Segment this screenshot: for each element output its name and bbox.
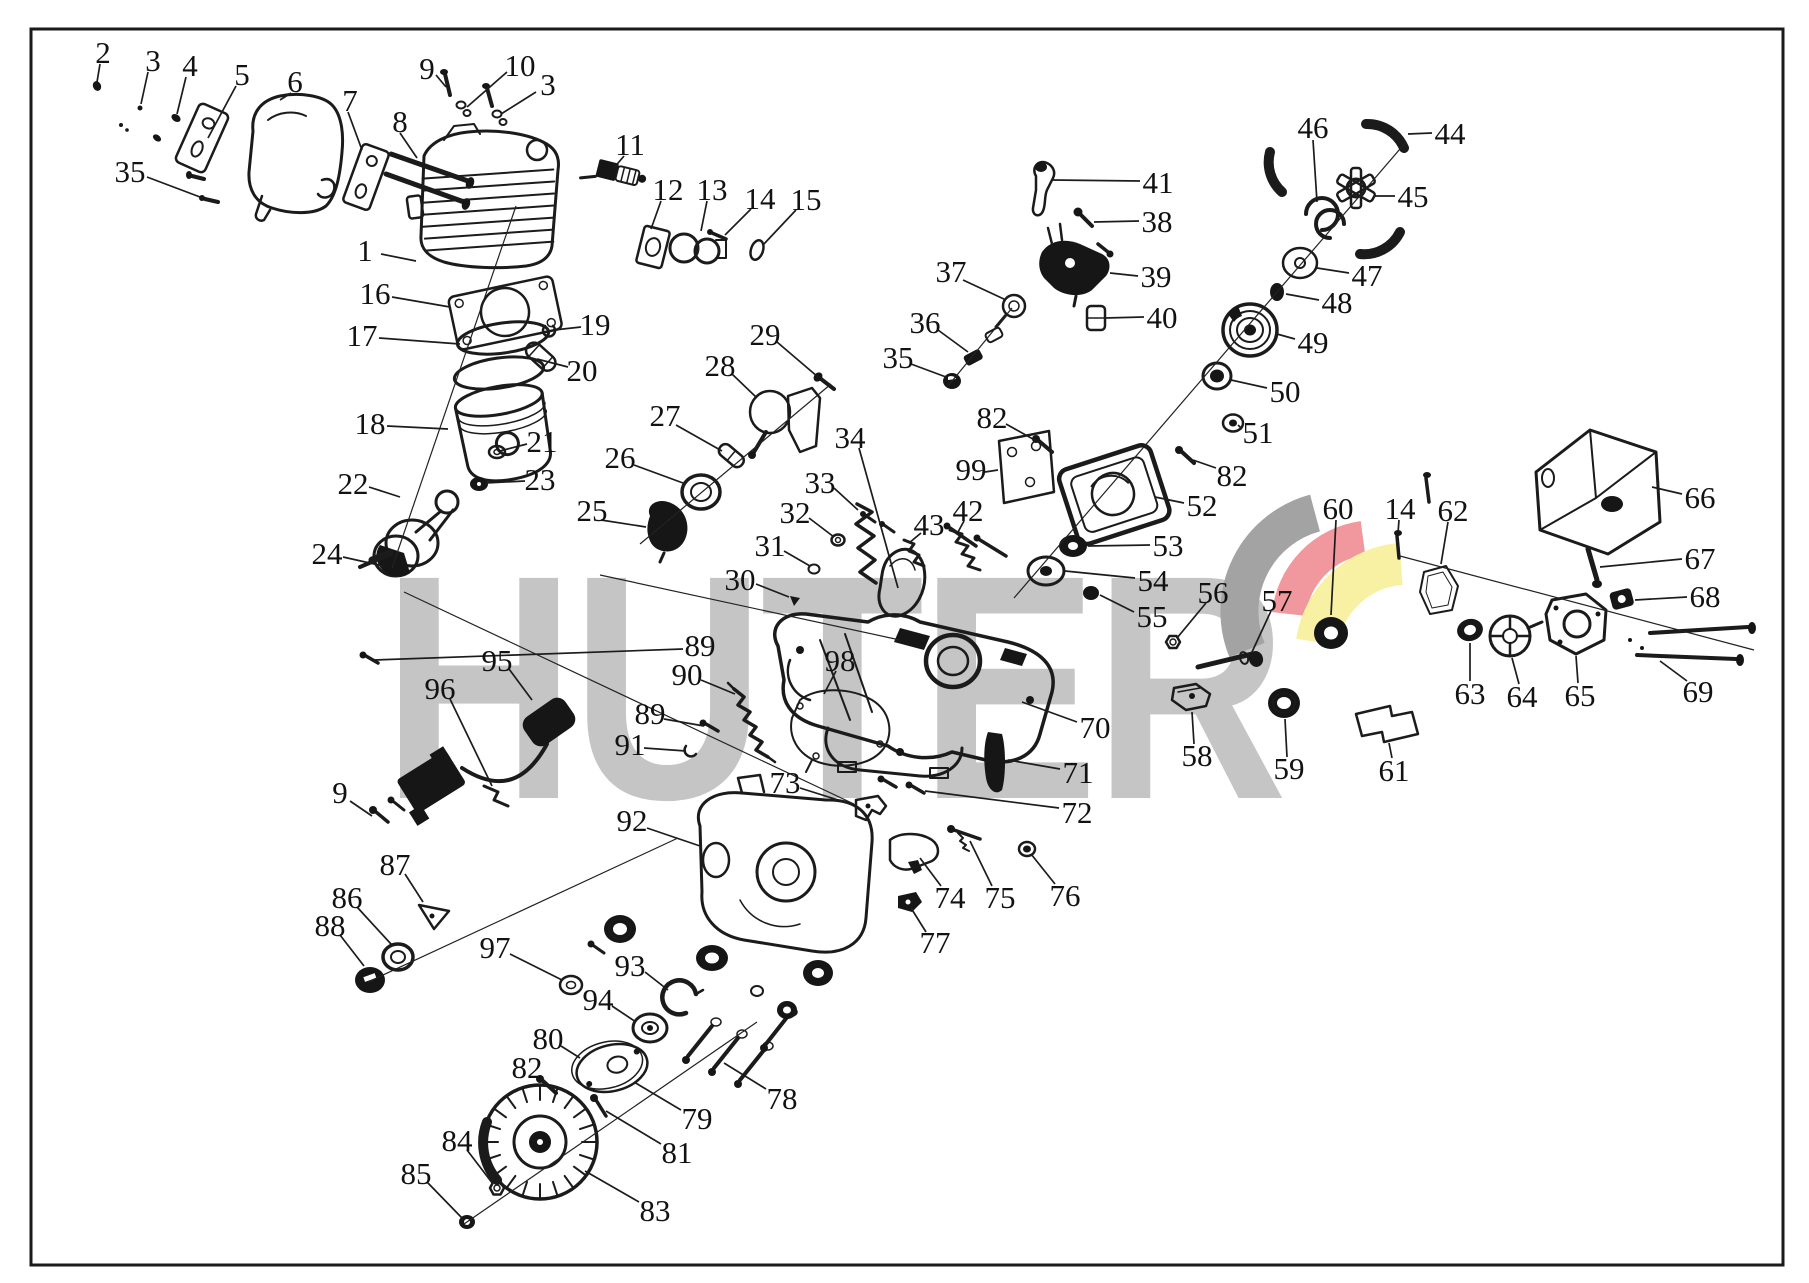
callout-65: 65 [1565, 678, 1596, 713]
callout-94: 94 [583, 982, 615, 1017]
callout-67: 67 [1685, 541, 1716, 576]
callout-82a: 82 [977, 400, 1008, 435]
callout-2: 2 [95, 35, 111, 70]
part-intake-boot-13 [670, 234, 726, 263]
callout-61: 61 [1379, 753, 1410, 788]
part-grommet-59 [1268, 688, 1300, 718]
leader-26 [634, 465, 683, 483]
leader-41 [1052, 180, 1140, 181]
callout-71: 71 [1063, 755, 1094, 790]
part-oil-tank-66 [1536, 430, 1660, 554]
callout-3: 3 [145, 43, 161, 78]
part-washer-97 [560, 976, 582, 994]
callout-15: 15 [791, 182, 822, 217]
callout-25: 25 [577, 493, 608, 528]
part-grommet-68 [1609, 587, 1635, 610]
exploded-parts-diagram: HUTER [0, 0, 1809, 1283]
callout-7: 7 [342, 83, 358, 118]
leader-35b [911, 364, 946, 377]
callout-37: 37 [936, 254, 967, 289]
part-nut-40 [1087, 306, 1105, 330]
leader-37 [963, 280, 1006, 300]
callout-10: 10 [505, 48, 536, 83]
callout-82b: 82 [1217, 458, 1248, 493]
leader-17 [379, 338, 460, 344]
leader-39 [1110, 273, 1138, 276]
leader-27 [676, 425, 722, 451]
part-gasket-62 [1420, 566, 1458, 614]
leader-82b [1193, 460, 1216, 468]
leader-85 [427, 1182, 462, 1218]
part-screws-9-10-3 [440, 69, 507, 125]
part-piston-rings-17 [452, 317, 550, 394]
leader-80 [561, 1046, 580, 1058]
callout-62: 62 [1438, 493, 1469, 528]
axis-line-2 [464, 1022, 757, 1224]
leader-93 [645, 972, 668, 990]
part-screw-14 [707, 229, 726, 239]
leader-49 [1277, 334, 1295, 339]
callout-26: 26 [605, 440, 636, 475]
callout-92: 92 [617, 803, 648, 838]
callout-57: 57 [1262, 583, 1293, 618]
part-ring-63 [1455, 616, 1486, 644]
leader-29 [777, 342, 818, 377]
part-muffler-cover-6 [249, 94, 343, 220]
leader-67 [1600, 559, 1682, 567]
callout-79: 79 [682, 1101, 713, 1136]
part-plate-61 [1356, 706, 1418, 742]
callout-84: 84 [442, 1123, 474, 1158]
callout-53: 53 [1153, 528, 1184, 563]
part-choke-lever-41 [1033, 162, 1054, 215]
callout-66: 66 [1685, 480, 1716, 515]
callout-11: 11 [615, 127, 645, 162]
part-gasket-12 [636, 225, 670, 268]
callout-41: 41 [1143, 165, 1174, 200]
leader-28 [732, 374, 757, 398]
callout-73: 73 [770, 765, 801, 800]
leader-81 [606, 1111, 661, 1144]
leader-50 [1231, 380, 1267, 388]
diagram-canvas: HUTER [0, 0, 1809, 1283]
callout-74: 74 [935, 880, 967, 915]
leader-47 [1317, 268, 1349, 273]
callout-68: 68 [1690, 579, 1721, 614]
part-oil-pump-64 [1490, 616, 1542, 656]
leader-9b [350, 801, 372, 816]
callout-96: 96 [425, 671, 456, 706]
callout-6: 6 [287, 64, 303, 99]
callout-44: 44 [1435, 116, 1467, 151]
leader-62 [1441, 522, 1448, 564]
callout-29: 29 [750, 317, 781, 352]
part-oring-15 [748, 239, 766, 262]
callout-43: 43 [914, 507, 945, 542]
part-small-fasteners-2-3-4 [91, 80, 182, 143]
callout-72: 72 [1062, 795, 1093, 830]
callout-64: 64 [1507, 679, 1539, 714]
callout-95: 95 [482, 643, 513, 678]
callout-54: 54 [1138, 563, 1170, 598]
part-oil-seal-60 [1314, 617, 1348, 649]
callout-32: 32 [780, 495, 811, 530]
callout-93: 93 [615, 948, 646, 983]
callout-76: 76 [1050, 878, 1081, 913]
callout-36: 36 [910, 305, 941, 340]
callout-18: 18 [355, 406, 386, 441]
part-washer-47 [1283, 248, 1317, 278]
part-cover-plate-79-80 [567, 1033, 653, 1100]
part-washer-51 [1223, 415, 1243, 432]
callout-60: 60 [1323, 491, 1354, 526]
callout-12: 12 [653, 172, 684, 207]
leader-79 [634, 1082, 681, 1110]
leader-36 [938, 330, 968, 352]
callout-27: 27 [650, 398, 681, 433]
callout-63: 63 [1455, 676, 1486, 711]
part-screws-35 [186, 171, 218, 202]
leader-1 [381, 254, 416, 261]
callout-5: 5 [234, 57, 250, 92]
callout-81: 81 [662, 1135, 693, 1170]
callout-14a: 14 [745, 181, 777, 216]
callout-24: 24 [312, 536, 344, 571]
callout-51: 51 [1243, 415, 1274, 450]
part-hose-67 [1588, 549, 1602, 588]
leader-97 [510, 954, 562, 980]
leader-99 [985, 470, 998, 472]
leader-83 [585, 1171, 639, 1202]
axis-line-6 [948, 308, 1012, 386]
part-gasket-7 [342, 143, 390, 211]
callout-98: 98 [825, 643, 856, 678]
callout-87: 87 [380, 847, 411, 882]
callout-35a: 35 [115, 154, 146, 189]
callout-33: 33 [805, 465, 836, 500]
callout-45: 45 [1398, 179, 1429, 214]
callout-49: 49 [1298, 325, 1329, 360]
leader-10 [467, 72, 507, 107]
callout-13: 13 [697, 172, 728, 207]
leader-38 [1094, 221, 1139, 222]
callout-9b: 9 [332, 775, 348, 810]
callout-22: 22 [338, 466, 369, 501]
callout-47: 47 [1352, 258, 1383, 293]
callout-55: 55 [1137, 599, 1168, 634]
part-carburetor-39 [1039, 224, 1113, 306]
part-cap-55 [1083, 586, 1099, 600]
part-woodruff-key-24 [383, 565, 390, 570]
part-bolts-78 [682, 1008, 797, 1088]
callout-91: 91 [615, 727, 646, 762]
part-clamp-77 [898, 892, 922, 912]
part-wrist-pin-20 [523, 339, 559, 374]
callout-48: 48 [1322, 285, 1353, 320]
part-washer-53 [1059, 535, 1087, 557]
leader-66 [1652, 487, 1682, 494]
callout-21: 21 [527, 424, 558, 459]
leader-35a [147, 177, 200, 197]
part-cap-88 [355, 967, 385, 993]
callout-78: 78 [767, 1081, 798, 1116]
callout-35b: 35 [883, 340, 914, 375]
part-rope-pulley-94 [633, 1014, 667, 1042]
part-clutch-springs-46 [1306, 198, 1344, 238]
callout-88: 88 [315, 908, 346, 943]
watermark-text: HUTER [382, 508, 1283, 866]
callout-9: 9 [419, 51, 435, 86]
callout-4: 4 [182, 48, 198, 83]
part-clutch-drum-49 [1223, 304, 1277, 356]
part-clutch-shoes-44 [1269, 124, 1404, 254]
part-washer-86 [383, 944, 413, 970]
callout-75: 75 [985, 880, 1016, 915]
part-pawl-87 [419, 905, 449, 929]
part-bearing-50 [1203, 363, 1231, 389]
callout-31: 31 [755, 528, 786, 563]
callout-38: 38 [1142, 204, 1173, 239]
part-bearing-23 [470, 477, 488, 491]
callout-40: 40 [1147, 300, 1178, 335]
callout-17: 17 [347, 318, 378, 353]
callout-89b: 89 [635, 696, 666, 731]
leader-3b [501, 92, 536, 114]
part-screw-38 [1074, 208, 1093, 227]
callout-42: 42 [953, 493, 984, 528]
callout-16: 16 [360, 276, 391, 311]
leader-33 [834, 488, 858, 510]
leader-44 [1408, 133, 1432, 134]
callout-46: 46 [1298, 110, 1329, 145]
callout-69: 69 [1683, 674, 1714, 709]
leader-48 [1286, 294, 1319, 300]
leader-94 [612, 1006, 636, 1022]
callout-30: 30 [725, 562, 756, 597]
part-bolts-69 [1628, 622, 1756, 666]
callout-90: 90 [672, 657, 703, 692]
part-rewind-spring-93 [662, 980, 703, 1014]
leader-53 [1088, 545, 1150, 546]
callout-50: 50 [1270, 374, 1301, 409]
leader-16 [392, 297, 450, 307]
callout-97: 97 [480, 930, 511, 965]
callout-58: 58 [1182, 738, 1213, 773]
callout-70: 70 [1080, 710, 1111, 745]
callout-99: 99 [956, 452, 987, 487]
callout-83: 83 [640, 1193, 671, 1228]
callout-20: 20 [567, 353, 598, 388]
callout-56: 56 [1198, 575, 1229, 610]
leader-18 [387, 426, 448, 429]
part-cylinder-1 [407, 124, 559, 268]
callout-28: 28 [705, 348, 736, 383]
leader-40 [1105, 317, 1144, 318]
callout-77: 77 [920, 925, 951, 960]
callout-3b: 3 [540, 67, 556, 102]
callout-59: 59 [1274, 751, 1305, 786]
leader-46 [1313, 140, 1317, 202]
part-screw-81 [590, 1094, 606, 1116]
leader-78 [724, 1063, 766, 1089]
callout-14b: 14 [1385, 491, 1417, 526]
callout-8: 8 [392, 104, 408, 139]
callout-52: 52 [1187, 488, 1218, 523]
callout-23: 23 [525, 462, 556, 497]
callout-19: 19 [580, 307, 611, 342]
part-guide-plate-99 [999, 431, 1054, 503]
leader-22 [369, 487, 400, 497]
callout-39: 39 [1141, 259, 1172, 294]
callout-82c: 82 [512, 1050, 543, 1085]
callout-85: 85 [401, 1156, 432, 1191]
callout-1: 1 [357, 233, 373, 268]
callout-34: 34 [835, 420, 867, 455]
part-pin-27 [716, 442, 746, 470]
part-screw-29 [812, 371, 834, 389]
leader-68 [1635, 597, 1687, 600]
